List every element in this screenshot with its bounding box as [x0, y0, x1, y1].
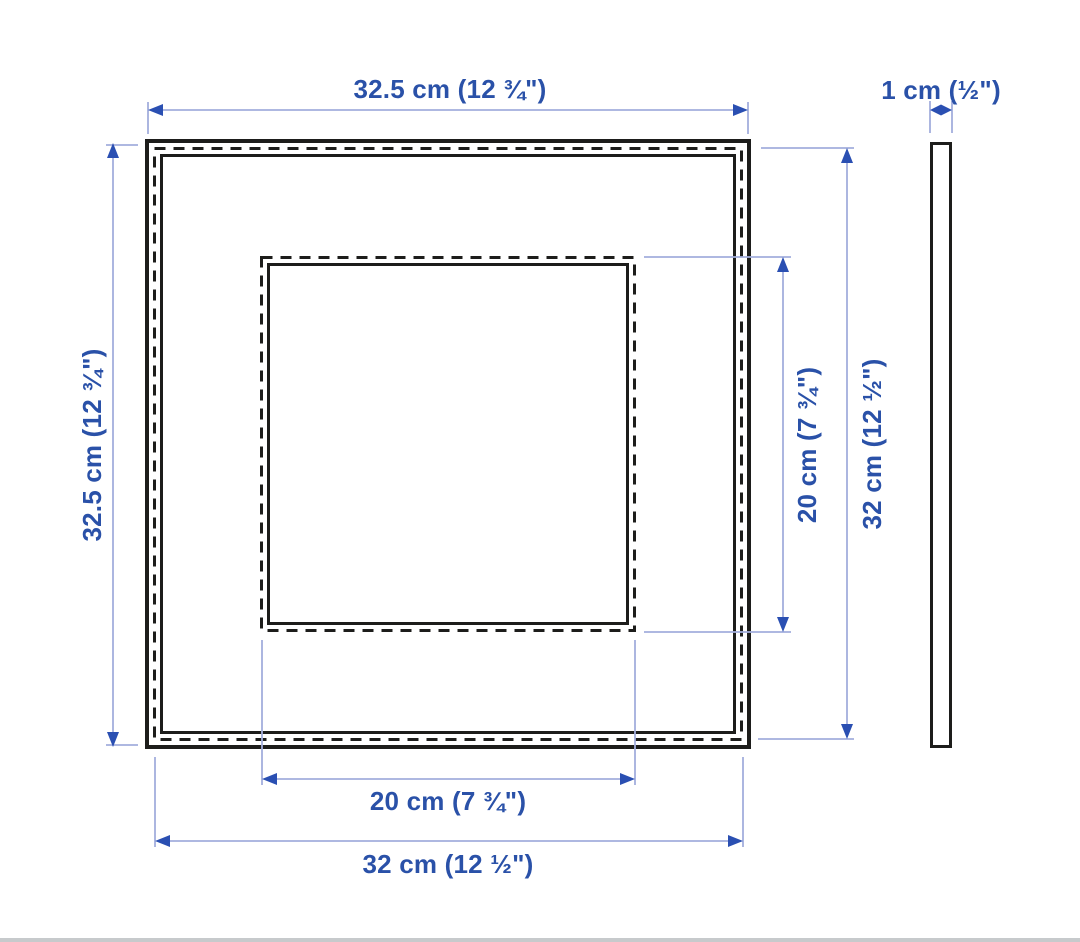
arrowhead-right: [620, 773, 635, 785]
dimension-diagram: 32.5 cm (12 ¾") 32.5 cm (12 ¾") 20 cm (7…: [0, 0, 1080, 942]
footer-divider: [0, 938, 1080, 942]
arrowhead-left: [262, 773, 277, 785]
dim-label-right-height: 32 cm (12 ½"): [859, 358, 885, 529]
dim-label-left-height: 32.5 cm (12 ¾"): [79, 348, 105, 541]
arrowhead-left: [148, 104, 163, 116]
dim-label-top-width: 32.5 cm (12 ¾"): [353, 76, 546, 102]
arrowhead-right: [728, 835, 743, 847]
dim-label-side-thickness: 1 cm (½"): [881, 77, 1001, 103]
dim-left-height: [106, 143, 138, 747]
arrowhead-right: [941, 105, 952, 116]
side-profile: [932, 144, 951, 747]
arrowhead-right: [733, 104, 748, 116]
dim-side-thickness: [930, 101, 952, 133]
arrowhead-down: [841, 724, 853, 739]
arrowhead-up: [777, 257, 789, 272]
arrowhead-down: [777, 617, 789, 632]
diagram-drawing: [0, 0, 1080, 942]
frame-side-view: [932, 144, 951, 747]
dim-label-opening-width: 20 cm (7 ¾"): [370, 788, 526, 814]
arrowhead-up: [841, 148, 853, 163]
dim-top-width: [148, 102, 748, 134]
arrowhead-left: [930, 105, 941, 116]
arrowhead-left: [155, 835, 170, 847]
opening-inner-edge: [269, 265, 628, 624]
frame-front-view: [147, 141, 749, 747]
dim-label-bottom-width: 32 cm (12 ½"): [362, 851, 533, 877]
dim-label-opening-height: 20 cm (7 ¾"): [794, 367, 820, 523]
